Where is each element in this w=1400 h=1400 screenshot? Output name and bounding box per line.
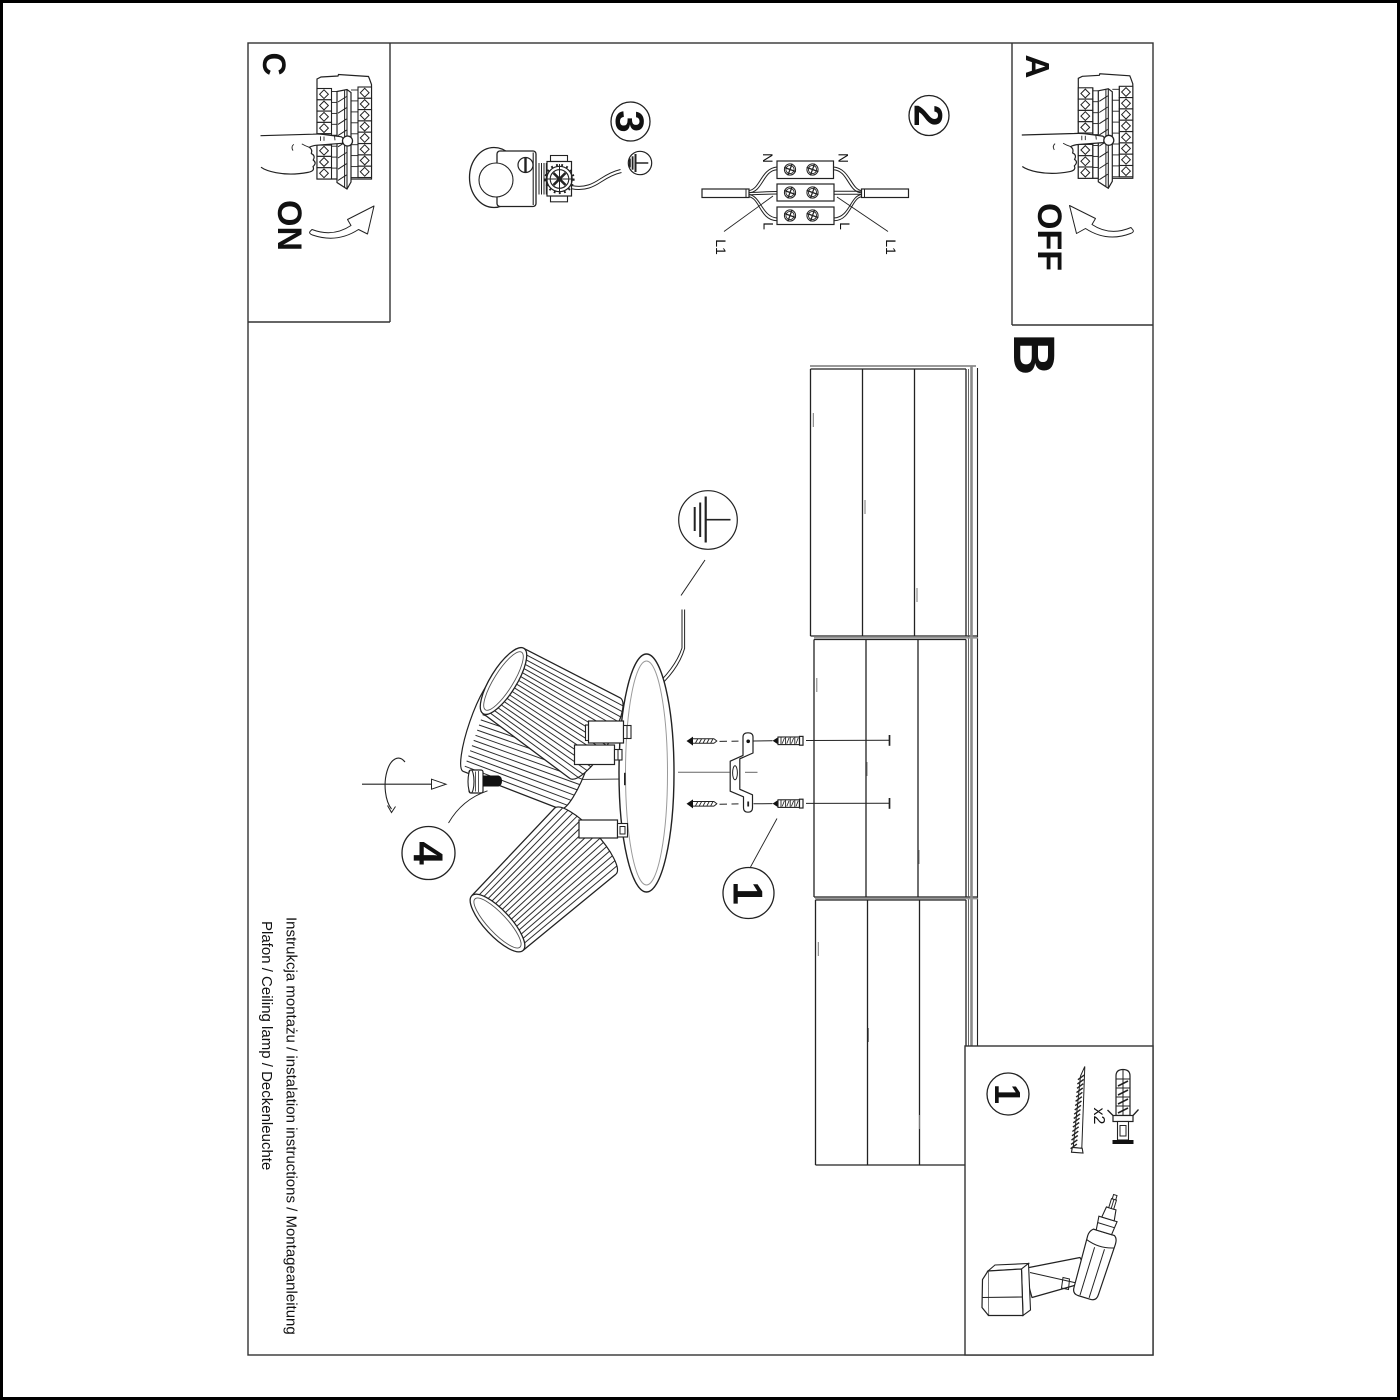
svg-text:Instrukcja montażu / instalati: Instrukcja montażu / instalation instruc… — [283, 917, 300, 1335]
svg-text:x2: x2 — [1090, 1108, 1107, 1125]
svg-text:3: 3 — [607, 110, 651, 132]
svg-text:2: 2 — [906, 104, 950, 126]
svg-text:L: L — [837, 222, 852, 230]
svg-text:ON: ON — [270, 200, 308, 251]
svg-text:N: N — [760, 153, 775, 163]
svg-text:1: 1 — [987, 1084, 1028, 1104]
svg-text:N: N — [836, 153, 851, 163]
svg-text:L1: L1 — [713, 239, 729, 255]
svg-text:C: C — [256, 53, 292, 76]
svg-text:B: B — [1001, 334, 1066, 376]
svg-text:OFF: OFF — [1030, 203, 1068, 271]
svg-text:Plafon / Ceiling lamp / Decken: Plafon / Ceiling lamp / Deckenleuchte — [258, 921, 275, 1170]
svg-text:L1: L1 — [883, 239, 899, 255]
svg-text:4: 4 — [404, 841, 451, 865]
svg-text:L: L — [761, 222, 776, 230]
svg-text:1: 1 — [724, 881, 771, 904]
svg-text:A: A — [1019, 55, 1056, 79]
